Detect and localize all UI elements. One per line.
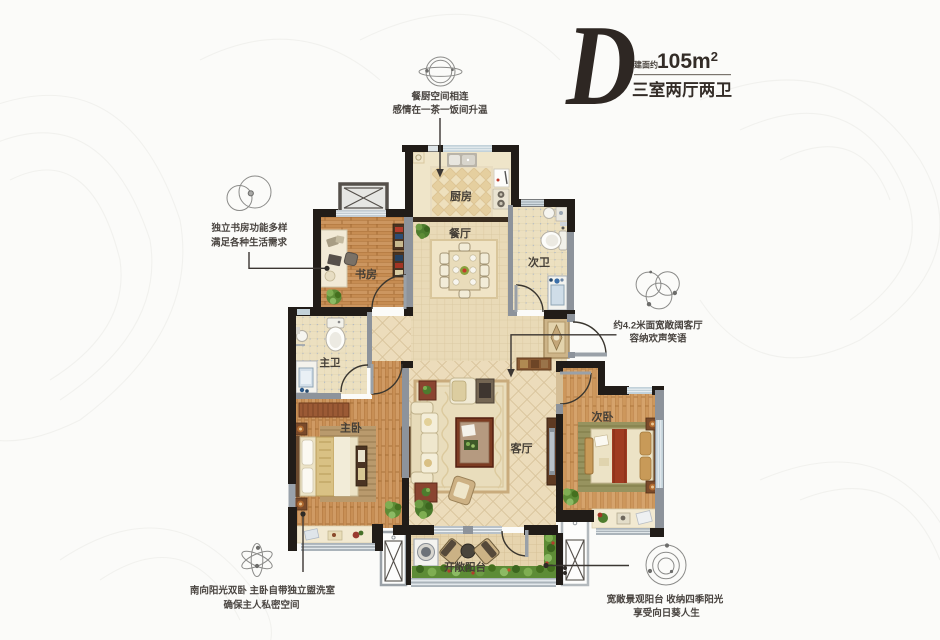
svg-text:次卫: 次卫 xyxy=(528,255,550,269)
svg-text:约4.2米面宽敞阔客厅: 约4.2米面宽敞阔客厅 xyxy=(613,319,703,331)
svg-text:确保主人私密空间: 确保主人私密空间 xyxy=(223,599,299,611)
svg-text:书房: 书房 xyxy=(355,267,377,281)
svg-text:容纳欢声笑语: 容纳欢声笑语 xyxy=(628,332,687,344)
svg-text:客厅: 客厅 xyxy=(510,441,533,455)
svg-text:南向阳光双卧 主卧自带独立盥洗室: 南向阳光双卧 主卧自带独立盥洗室 xyxy=(190,584,336,596)
svg-text:餐厅: 餐厅 xyxy=(448,226,471,240)
svg-text:三室两厅两卫: 三室两厅两卫 xyxy=(632,80,732,100)
svg-text:开敞阳台: 开敞阳台 xyxy=(444,561,486,574)
svg-text:享受向日葵人生: 享受向日葵人生 xyxy=(633,607,700,619)
svg-text:建面约: 建面约 xyxy=(633,60,658,70)
svg-text:独立书房功能多样: 独立书房功能多样 xyxy=(210,222,288,234)
svg-text:宽敞景观阳台 收纳四季阳光: 宽敞景观阳台 收纳四季阳光 xyxy=(606,593,724,605)
svg-text:105m2: 105m2 xyxy=(657,49,718,73)
svg-text:主卧: 主卧 xyxy=(340,421,362,435)
svg-text:主卫: 主卫 xyxy=(320,356,341,369)
svg-text:D: D xyxy=(565,3,637,130)
svg-text:感情在一茶一饭间升温: 感情在一茶一饭间升温 xyxy=(392,104,488,116)
svg-text:满足各种生活需求: 满足各种生活需求 xyxy=(211,236,288,248)
svg-text:餐厨空间相连: 餐厨空间相连 xyxy=(410,91,469,103)
svg-text:厨房: 厨房 xyxy=(450,189,472,203)
svg-text:次卧: 次卧 xyxy=(592,410,614,424)
